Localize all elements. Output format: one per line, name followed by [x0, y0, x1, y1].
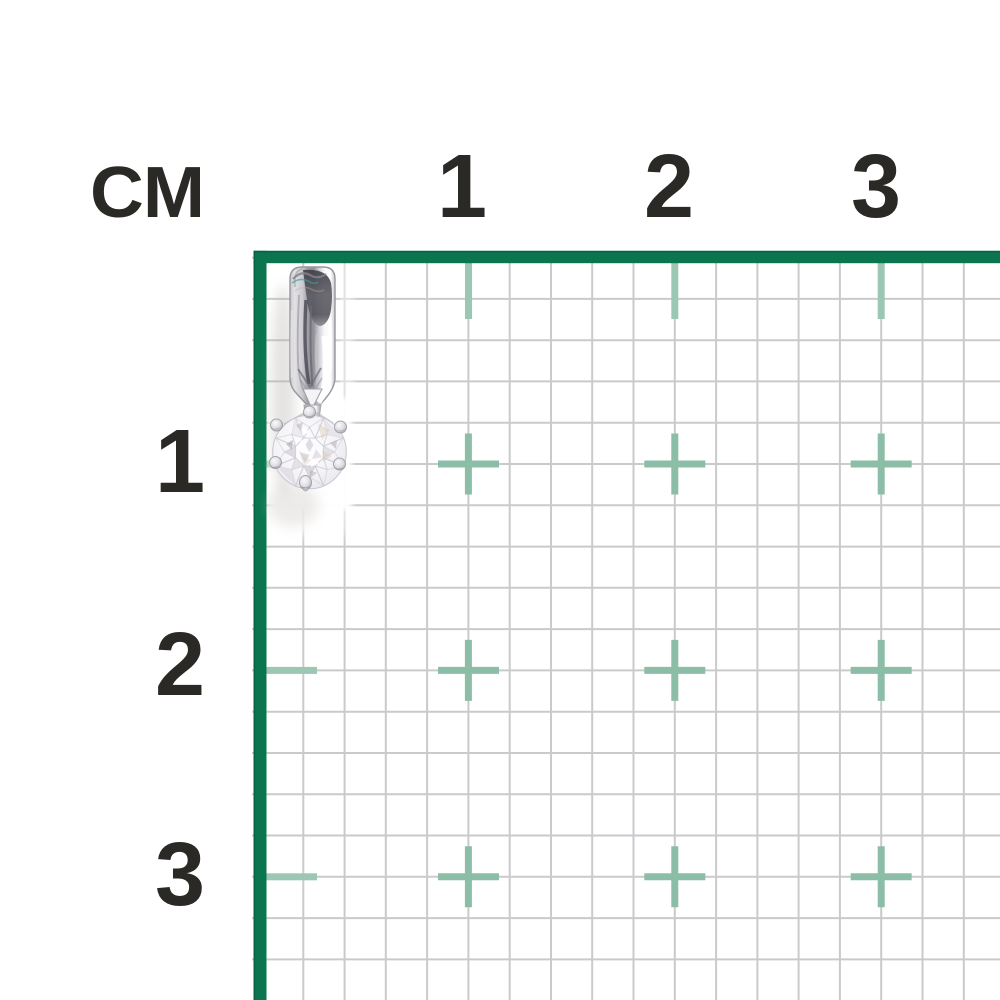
svg-text:1: 1 [437, 137, 487, 237]
svg-text:2: 2 [155, 615, 205, 715]
svg-text:1: 1 [155, 412, 205, 512]
svg-text:3: 3 [851, 137, 901, 237]
svg-text:СМ: СМ [90, 153, 205, 233]
svg-text:2: 2 [644, 137, 694, 237]
svg-text:3: 3 [155, 825, 205, 925]
